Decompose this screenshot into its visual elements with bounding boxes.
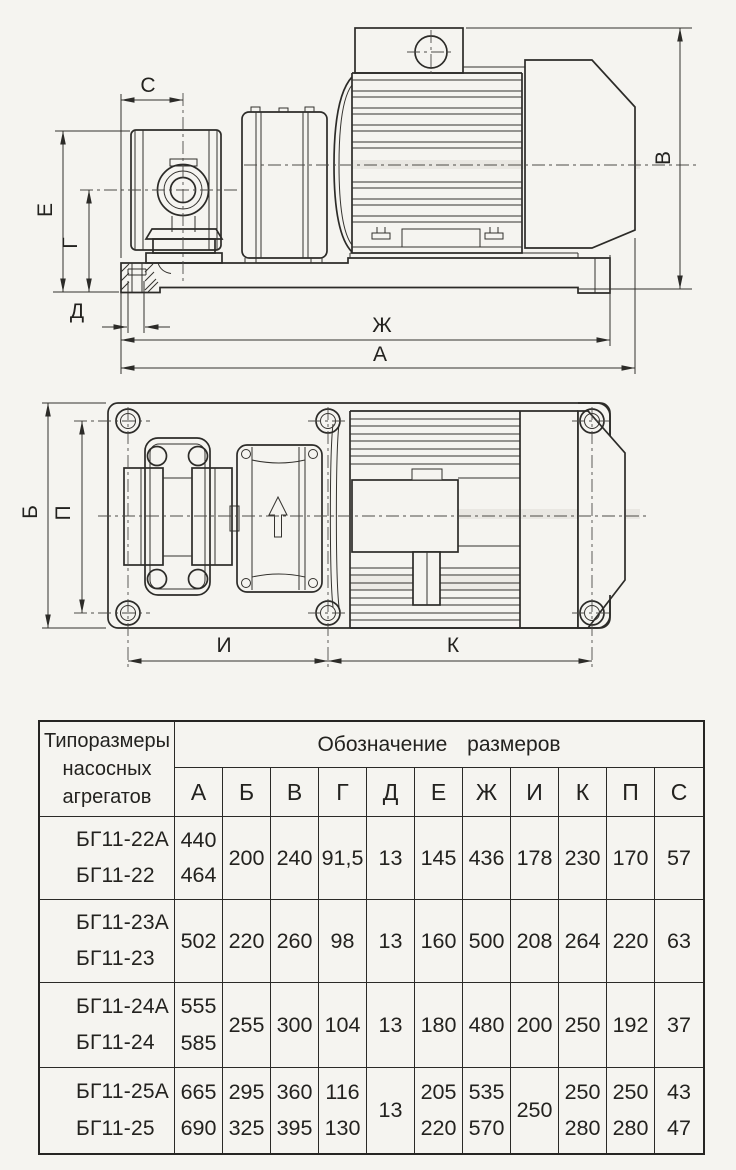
model-name: БГ11-22А [76, 828, 169, 852]
model-name: БГ11-23 [76, 947, 155, 971]
value-cell: 13 [367, 817, 415, 900]
top-view: Б П И К [19, 403, 648, 668]
header-line: Типоразмеры [44, 727, 170, 755]
dim-label-zh: Ж [372, 314, 392, 337]
value-cell: 200 [511, 983, 559, 1068]
value-cell: 145 [415, 817, 463, 900]
motor-rear-cover-top [578, 411, 625, 628]
dim-label-i: И [216, 634, 231, 657]
column-header-k: К [559, 768, 607, 817]
value-cell: 535570 [463, 1068, 511, 1153]
coupling-side [242, 107, 327, 263]
model-name: БГ11-23А [76, 911, 169, 935]
column-header-e: Е [415, 768, 463, 817]
technical-drawing-page: С Е Г Д Ж А В [0, 0, 736, 1170]
value-cell: 250280 [607, 1068, 655, 1153]
table-header-oboznachenie: Обозначение размеров [175, 722, 703, 768]
value-cell: 200 [223, 817, 271, 900]
value-cell: 37 [655, 983, 703, 1068]
value-cell: 205220 [415, 1068, 463, 1153]
model-name: БГ11-24 [76, 1031, 155, 1055]
dim-label-k: К [447, 634, 460, 657]
dim-label-e: Е [34, 203, 57, 217]
pump-top [124, 438, 239, 595]
value-cell: 178 [511, 817, 559, 900]
value-cell: 500 [463, 900, 511, 983]
value-cell: 300 [271, 983, 319, 1068]
model-names-cell: БГ11-23А БГ11-23 [40, 900, 175, 983]
value-cell: 250 [559, 983, 607, 1068]
value-cell: 502 [175, 900, 223, 983]
value-cell: 360395 [271, 1068, 319, 1153]
value-cell: 250280 [559, 1068, 607, 1153]
motor-side [334, 28, 635, 253]
model-name: БГ11-22 [76, 864, 155, 888]
value-cell: 295325 [223, 1068, 271, 1153]
header-line: агрегатов [63, 783, 152, 811]
dim-label-p: П [52, 505, 75, 520]
baseplate-side [121, 253, 610, 293]
value-cell: 260 [271, 900, 319, 983]
value-cell: 13 [367, 1068, 415, 1153]
side-view: С Е Г Д Ж А В [34, 28, 700, 374]
model-name: БГ11-25 [76, 1117, 155, 1141]
column-header-zh: Ж [463, 768, 511, 817]
value-cell: 480 [463, 983, 511, 1068]
dim-label-g: Г [59, 237, 82, 248]
column-header-v: В [271, 768, 319, 817]
model-name: БГ11-25А [76, 1080, 169, 1104]
model-names-cell: БГ11-22А БГ11-22 [40, 817, 175, 900]
value-cell: 230 [559, 817, 607, 900]
value-cell: 208 [511, 900, 559, 983]
value-cell: 4347 [655, 1068, 703, 1153]
value-cell: 13 [367, 983, 415, 1068]
model-name: БГ11-24А [76, 995, 169, 1019]
value-cell: 665690 [175, 1068, 223, 1153]
value-cell: 255 [223, 983, 271, 1068]
value-cell: 220 [223, 900, 271, 983]
rotation-arrow [269, 497, 287, 537]
column-header-i: И [511, 768, 559, 817]
value-cell: 104 [319, 983, 367, 1068]
value-cell: 63 [655, 900, 703, 983]
value-cell: 116130 [319, 1068, 367, 1153]
column-header-d: Д [367, 768, 415, 817]
value-cell: 192 [607, 983, 655, 1068]
column-header-a: А [175, 768, 223, 817]
pump-side [131, 130, 222, 263]
dimensions-table: Типоразмеры насосных агрегатов Обозначен… [38, 720, 705, 1155]
dim-label-b: Б [19, 505, 42, 519]
value-cell: 250 [511, 1068, 559, 1153]
model-names-cell: БГ11-24А БГ11-24 [40, 983, 175, 1068]
motor-rear-cover [525, 60, 635, 248]
column-header-b: Б [223, 768, 271, 817]
dim-label-s: С [140, 74, 155, 97]
value-cell: 91,5 [319, 817, 367, 900]
motor-top [330, 411, 625, 628]
header-line: насосных [63, 755, 152, 783]
column-header-s: С [655, 768, 703, 817]
value-cell: 170 [607, 817, 655, 900]
dim-label-a: А [373, 343, 387, 366]
column-header-p: П [607, 768, 655, 817]
pump-unit-assembly-drawing: С Е Г Д Ж А В [0, 0, 736, 706]
value-cell: 180 [415, 983, 463, 1068]
value-cell: 98 [319, 900, 367, 983]
table-header-typorazmery: Типоразмеры насосных агрегатов [40, 722, 175, 817]
value-cell: 160 [415, 900, 463, 983]
dim-label-d: Д [70, 300, 84, 323]
coupling-top [237, 445, 322, 592]
value-cell: 57 [655, 817, 703, 900]
value-cell: 220 [607, 900, 655, 983]
value-cell: 13 [367, 900, 415, 983]
value-cell: 440464 [175, 817, 223, 900]
value-cell: 555585 [175, 983, 223, 1068]
model-names-cell: БГ11-25А БГ11-25 [40, 1068, 175, 1153]
dim-label-v: В [652, 151, 675, 165]
column-header-g: Г [319, 768, 367, 817]
value-cell: 436 [463, 817, 511, 900]
value-cell: 264 [559, 900, 607, 983]
value-cell: 240 [271, 817, 319, 900]
